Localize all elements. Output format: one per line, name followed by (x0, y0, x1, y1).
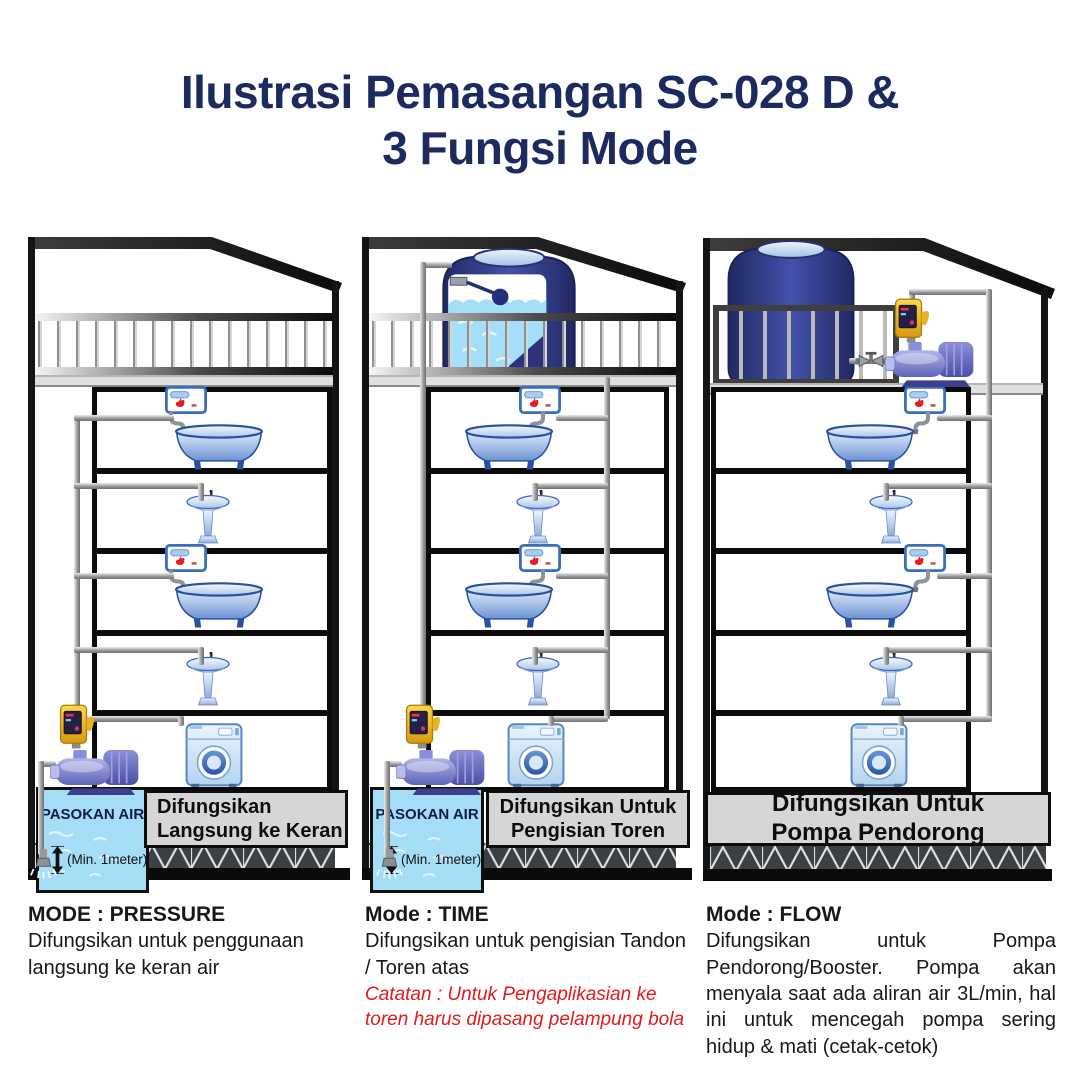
washing-machine-icon (850, 721, 908, 787)
valve-icon (855, 351, 887, 371)
branch-stub (883, 647, 889, 665)
left-wall (703, 238, 710, 873)
pump-icon (396, 745, 496, 795)
branch-pipe (74, 483, 204, 489)
mode-description: Difungsikan untuk Pompa Pendorong/Booste… (706, 928, 1056, 1060)
branch-pipe (74, 573, 174, 579)
branch-pipe (885, 483, 992, 489)
right-wall (676, 281, 683, 845)
suction-pipe (384, 761, 390, 855)
controller-icon (893, 297, 931, 343)
branch-pipe (534, 647, 608, 653)
caption-line1: Difungsikan Untuk (489, 795, 687, 819)
mode-block-time: Mode : TIME Difungsikan untuk pengisian … (365, 901, 697, 1032)
floor-line (429, 710, 666, 716)
bathtub-icon (463, 582, 555, 630)
foot-valve-icon (30, 849, 57, 880)
branch-stub (198, 647, 204, 665)
page-title-line2: 3 Fungsi Mode (0, 120, 1080, 176)
mode-description: Difungsikan untuk pengisian Tandon / Tor… (365, 928, 697, 981)
water-heater-icon (904, 386, 946, 414)
bathtub-icon (463, 424, 555, 472)
floor-line (95, 630, 329, 636)
branch-stub (198, 483, 204, 501)
branch-stub (883, 483, 889, 501)
roof-icon (26, 225, 350, 305)
caption-line1: Difungsikan (157, 795, 345, 819)
branch-pipe (74, 647, 204, 653)
branch-stub (178, 716, 184, 726)
branch-stub (898, 716, 904, 726)
railing-balusters-icon (372, 321, 674, 367)
branch-stub (548, 716, 554, 726)
mode-description: Difungsikan untuk penggunaan langsung ke… (28, 928, 358, 981)
riser-pipe (74, 415, 80, 725)
railing-top-rail (35, 313, 333, 321)
mode-note: Catatan : Untuk Pengaplikasian ke toren … (365, 983, 697, 1032)
building-interior (92, 387, 332, 792)
sink-icon (185, 652, 231, 708)
floor-line (429, 630, 666, 636)
branch-pipe (937, 573, 992, 579)
min-height-label: (Min. 1meter) (67, 852, 147, 867)
floor-line (714, 630, 968, 636)
pump-icon (50, 745, 150, 795)
branch-pipe (937, 415, 992, 421)
caption-box: Difungsikan Untuk Pengisian Toren (486, 790, 690, 848)
sink-icon (185, 490, 231, 546)
bathtub-icon (173, 424, 265, 472)
left-wall (28, 237, 35, 873)
branch-pipe (548, 716, 608, 722)
caption-line2: Langsung ke Keran (157, 819, 345, 843)
railing-bottom-rail (35, 367, 333, 375)
left-wall (362, 237, 369, 873)
illustration-canvas: Ilustrasi Pemasangan SC-028 D & 3 Fungsi… (0, 0, 1080, 1080)
branch-stub (532, 647, 538, 665)
building-interior (426, 387, 669, 792)
page-title: Ilustrasi Pemasangan SC-028 D & 3 Fungsi… (0, 64, 1080, 176)
supply-label: PASOKAN AIR (39, 806, 146, 823)
controller-icon (404, 703, 442, 749)
page-title-line1: Ilustrasi Pemasangan SC-028 D & (0, 64, 1080, 120)
mode-block-pressure: MODE : PRESSURE Difungsikan untuk penggu… (28, 901, 358, 981)
branch-pipe (885, 647, 992, 653)
right-wall (332, 281, 339, 845)
washing-machine-icon (185, 721, 243, 787)
railing-top-rail (369, 313, 676, 321)
sink-icon (515, 490, 561, 546)
water-heater-icon (165, 544, 207, 572)
sink-icon (868, 490, 914, 546)
water-heater-icon (904, 544, 946, 572)
right-wall (1041, 287, 1048, 845)
water-heater-icon (519, 386, 561, 414)
water-heater-icon (519, 544, 561, 572)
foot-valve-icon (376, 849, 403, 880)
house-diagram-time: PASOKAN AIR (Min. 1meter) Difungsikan Un… (362, 225, 692, 885)
bathtub-icon (824, 424, 916, 472)
railing-bottom-rail (369, 367, 676, 375)
bathtub-icon (824, 582, 916, 630)
riser-pipe (420, 262, 426, 725)
branch-stub (532, 483, 538, 501)
downfeed-pipe (604, 377, 610, 719)
branch-pipe (74, 415, 174, 421)
sink-icon (515, 652, 561, 708)
house-diagram-flow: Difungsikan Untuk Pompa Pendorong (703, 225, 1058, 885)
branch-pipe (900, 716, 992, 722)
caption-box: Difungsikan Langsung ke Keran (144, 790, 348, 848)
caption-line2: Pompa Pendorong (708, 819, 1048, 848)
downfeed-pipe (986, 289, 992, 719)
pump-icon (885, 337, 985, 387)
branch-pipe (556, 415, 608, 421)
caption-line1: Difungsikan Untuk (708, 790, 1048, 819)
mode-title: Mode : TIME (365, 901, 697, 928)
house-diagram-pressure: PASOKAN AIR (Min. 1meter) Difungsikan La… (28, 225, 350, 885)
caption-line2: Pengisian Toren (489, 819, 687, 843)
min-height-label: (Min. 1meter) (401, 852, 481, 867)
washing-machine-icon (507, 721, 565, 787)
water-heater-icon (165, 386, 207, 414)
controller-icon (58, 703, 96, 749)
building-interior (711, 387, 971, 792)
suction-pipe (38, 761, 44, 855)
floor-line (95, 548, 329, 554)
bathtub-icon (173, 582, 265, 630)
foundation-truss (710, 845, 1046, 871)
mode-block-flow: Mode : FLOW Difungsikan untuk Pompa Pend… (706, 901, 1056, 1060)
sink-icon (868, 652, 914, 708)
caption-box: Difungsikan Untuk Pompa Pendorong (705, 792, 1051, 846)
railing-balusters-icon (713, 305, 899, 385)
branch-pipe (534, 483, 608, 489)
mode-title: Mode : FLOW (706, 901, 1056, 928)
top-pipe (909, 289, 992, 295)
mode-title: MODE : PRESSURE (28, 901, 358, 928)
foundation-base (703, 869, 1052, 881)
branch-pipe (556, 573, 608, 579)
railing-balusters-icon (38, 321, 332, 367)
